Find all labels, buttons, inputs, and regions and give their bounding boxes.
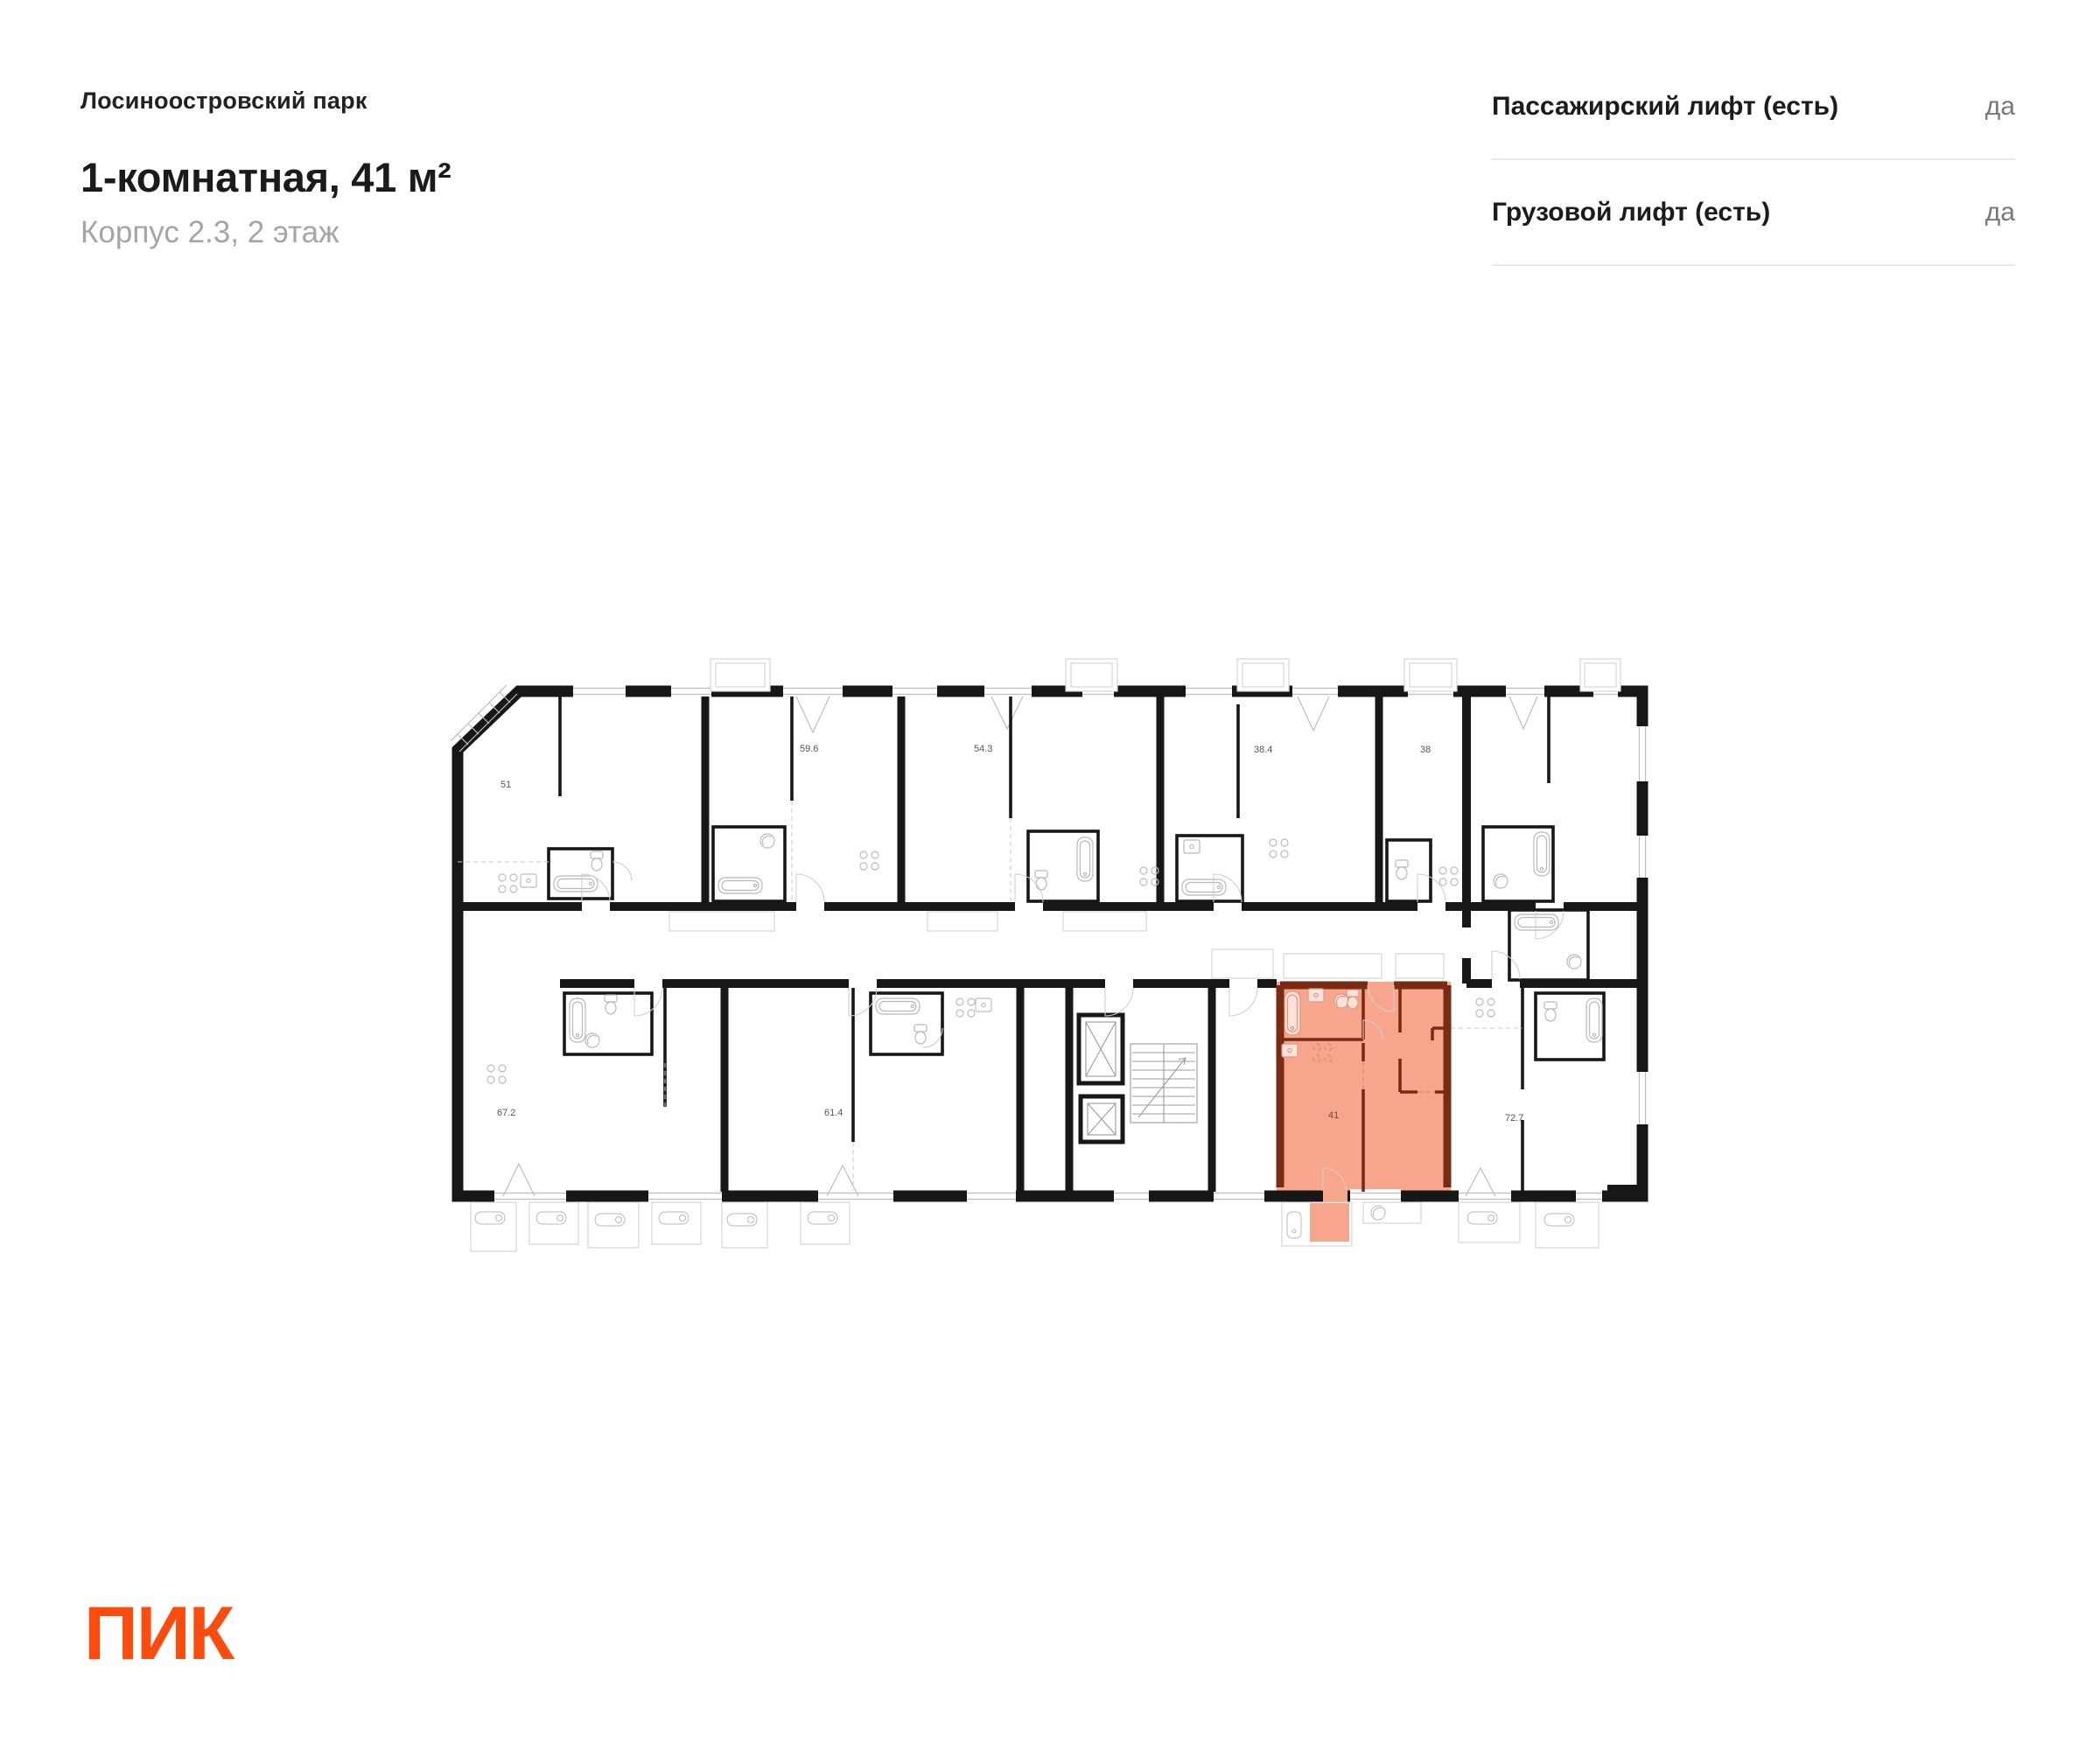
- toilet-icon: [1035, 871, 1047, 890]
- bathtub-icon: [1515, 914, 1558, 930]
- attribute-label: Грузовой лифт (есть): [1492, 198, 1770, 227]
- area-label-67-2: 67.2: [497, 1108, 515, 1118]
- core: [1079, 1015, 1197, 1142]
- attributes-panel: Пассажирский лифт (есть) да Грузовой лиф…: [1492, 54, 2015, 266]
- bathtub-icon: [1586, 998, 1602, 1042]
- stove-icon: [1476, 998, 1494, 1017]
- stove-icon: [1140, 867, 1158, 885]
- area-label-38: 38: [1420, 745, 1431, 755]
- balcony: [1310, 1203, 1349, 1242]
- elevator-shaft-1: [1079, 1015, 1123, 1083]
- ac-unit-icon: [1544, 1214, 1574, 1226]
- fan-icon: [1567, 955, 1581, 969]
- ac-unit-icon: [659, 1212, 689, 1224]
- stove-icon: [1270, 839, 1288, 857]
- attribute-value: да: [1985, 198, 2015, 227]
- toilet-icon: [914, 1025, 927, 1044]
- area-label-54-3: 54.3: [974, 744, 992, 754]
- stove-icon: [499, 874, 517, 892]
- attribute-row-cargo-lift: Грузовой лифт (есть) да: [1492, 160, 2015, 266]
- ac-unit-icon: [808, 1212, 837, 1224]
- fan-icon: [1334, 994, 1348, 1008]
- ac-unit-icon: [475, 1212, 505, 1224]
- sink-icon: [976, 998, 991, 1011]
- area-label-61-4: 61.4: [824, 1108, 843, 1118]
- attribute-label: Пассажирский лифт (есть): [1492, 92, 1838, 122]
- page-subtitle: Корпус 2.3, 2 этаж: [80, 215, 451, 250]
- elevator-shaft-2: [1081, 1096, 1123, 1142]
- ac-unit-icon: [1467, 1212, 1497, 1224]
- attribute-value: да: [1985, 92, 2015, 122]
- toilet-icon: [1347, 990, 1359, 1009]
- ac-unit-icon: [536, 1212, 566, 1224]
- sink-icon: [521, 874, 536, 887]
- toilet-icon: [1544, 1002, 1557, 1021]
- bathtub-icon: [876, 998, 920, 1014]
- bathtub-icon: [570, 998, 585, 1042]
- unit-divider-walls: [705, 696, 1645, 1200]
- bathtub-icon: [1284, 991, 1300, 1035]
- fan-icon: [585, 1033, 599, 1047]
- bathtub-icon: [1077, 837, 1093, 881]
- sink-icon: [1184, 840, 1200, 853]
- area-label-38-4: 38.4: [1254, 745, 1272, 755]
- toilet-icon: [605, 995, 617, 1014]
- bathtub-icon: [554, 876, 598, 892]
- staircase: [1130, 1044, 1197, 1123]
- stove-icon: [956, 998, 975, 1017]
- fan-icon: [1371, 1206, 1385, 1220]
- corridor-furniture: [669, 912, 1444, 978]
- sink-icon: [1308, 989, 1324, 1002]
- fan-icon: [760, 834, 774, 848]
- corridor-walls: [458, 696, 1642, 983]
- header: Лосиноостровский парк 1-комнатная, 41 м²…: [80, 87, 451, 250]
- ac-unit-icon: [727, 1214, 757, 1226]
- area-label-59-6: 59.6: [800, 744, 818, 754]
- stove-icon: [1439, 867, 1458, 885]
- area-label-72-7: 72.7: [1505, 1113, 1523, 1123]
- stove-icon: [860, 851, 878, 870]
- toilet-icon: [591, 851, 603, 871]
- sink-icon: [1282, 1044, 1298, 1057]
- page-title: 1-комнатная, 41 м²: [80, 153, 451, 201]
- ac-unit-icon: [595, 1214, 625, 1226]
- fan-icon: [1494, 874, 1508, 888]
- area-label-41[interactable]: 41: [1328, 1110, 1339, 1121]
- bottom-balconies: [471, 1202, 1599, 1251]
- floor-plan: 51 59.6 54.3 38.4 38 67.2 61.4 41 72.7: [451, 652, 1684, 1264]
- bathtub-icon: [1534, 832, 1550, 876]
- attribute-row-passenger-lift: Пассажирский лифт (есть) да: [1492, 54, 2015, 160]
- project-name: Лосиноостровский парк: [80, 87, 451, 115]
- stove-icon: [487, 1065, 506, 1083]
- bathtub-icon: [1182, 879, 1226, 895]
- area-label-51: 51: [500, 780, 511, 790]
- bathtub-icon: [718, 878, 762, 893]
- toilet-icon: [1396, 860, 1408, 879]
- pik-logo: ПИК: [84, 1596, 233, 1671]
